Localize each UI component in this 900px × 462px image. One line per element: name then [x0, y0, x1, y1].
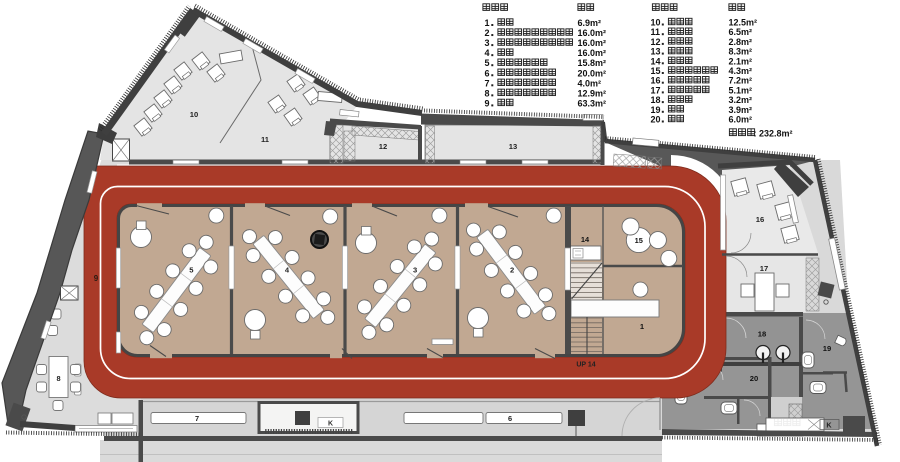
- svg-text:16.0m²: 16.0m²: [578, 48, 607, 58]
- svg-text:6.0m²: 6.0m²: [729, 115, 753, 125]
- svg-text:6: 6: [485, 68, 490, 78]
- svg-text:20: 20: [750, 374, 758, 383]
- svg-text:12: 12: [651, 37, 661, 47]
- svg-text:8: 8: [485, 88, 490, 98]
- svg-text:16.0m²: 16.0m²: [578, 38, 607, 48]
- svg-text:10: 10: [651, 18, 661, 28]
- svg-text:4: 4: [485, 48, 490, 58]
- svg-text:9: 9: [485, 98, 490, 108]
- svg-text:19: 19: [651, 105, 661, 115]
- svg-text:15: 15: [651, 66, 661, 76]
- svg-text:11: 11: [651, 27, 661, 37]
- svg-text:8: 8: [56, 374, 60, 383]
- svg-text:18: 18: [758, 330, 766, 339]
- svg-text:4.0m²: 4.0m²: [578, 78, 602, 88]
- svg-text:14: 14: [651, 56, 661, 66]
- svg-text:10: 10: [190, 110, 198, 119]
- svg-text:7.2m²: 7.2m²: [729, 76, 753, 86]
- svg-text:20: 20: [651, 115, 661, 125]
- svg-text:16: 16: [651, 76, 661, 86]
- svg-text:3: 3: [485, 38, 490, 48]
- svg-text:2.8m²: 2.8m²: [729, 37, 753, 47]
- svg-text:12: 12: [379, 142, 387, 151]
- svg-text:20.0m²: 20.0m²: [578, 68, 607, 78]
- svg-text:15.8m²: 15.8m²: [578, 58, 607, 68]
- svg-text:14: 14: [581, 235, 590, 244]
- svg-text:7: 7: [195, 414, 199, 423]
- svg-text:63.3m²: 63.3m²: [578, 98, 607, 108]
- svg-text:4.3m²: 4.3m²: [729, 66, 753, 76]
- svg-text:17: 17: [651, 85, 661, 95]
- svg-text:5: 5: [485, 58, 490, 68]
- svg-text:2: 2: [485, 28, 490, 38]
- svg-text:12.5m²: 12.5m²: [729, 18, 758, 28]
- svg-text:17: 17: [760, 264, 768, 273]
- svg-text:UP 14: UP 14: [576, 362, 595, 369]
- svg-text:12.9m²: 12.9m²: [578, 88, 607, 98]
- svg-text:9: 9: [94, 274, 99, 283]
- svg-text:6.5m²: 6.5m²: [729, 27, 753, 37]
- svg-text:18: 18: [651, 95, 661, 105]
- svg-text:13: 13: [651, 47, 661, 57]
- svg-text:3.9m²: 3.9m²: [729, 105, 753, 115]
- svg-text:6.9m²: 6.9m²: [578, 18, 602, 28]
- svg-text:3: 3: [413, 265, 417, 274]
- svg-text:19: 19: [823, 344, 831, 353]
- svg-text:5.1m²: 5.1m²: [729, 85, 753, 95]
- svg-text:2: 2: [510, 265, 514, 274]
- svg-text:1: 1: [485, 18, 490, 28]
- svg-text:K: K: [328, 421, 333, 428]
- svg-text:13: 13: [509, 142, 517, 151]
- svg-text:16: 16: [756, 215, 764, 224]
- svg-text:7: 7: [485, 78, 490, 88]
- svg-text:3.2m²: 3.2m²: [729, 95, 753, 105]
- svg-text:: 232.8m²: : 232.8m²: [754, 128, 793, 138]
- svg-text:11: 11: [261, 135, 270, 144]
- svg-text:16.0m²: 16.0m²: [578, 28, 607, 38]
- svg-text:2.1m²: 2.1m²: [729, 56, 753, 66]
- svg-text:8.3m²: 8.3m²: [729, 47, 753, 57]
- svg-text:15: 15: [635, 236, 643, 245]
- svg-text:6: 6: [508, 414, 512, 423]
- svg-text:K: K: [826, 421, 832, 430]
